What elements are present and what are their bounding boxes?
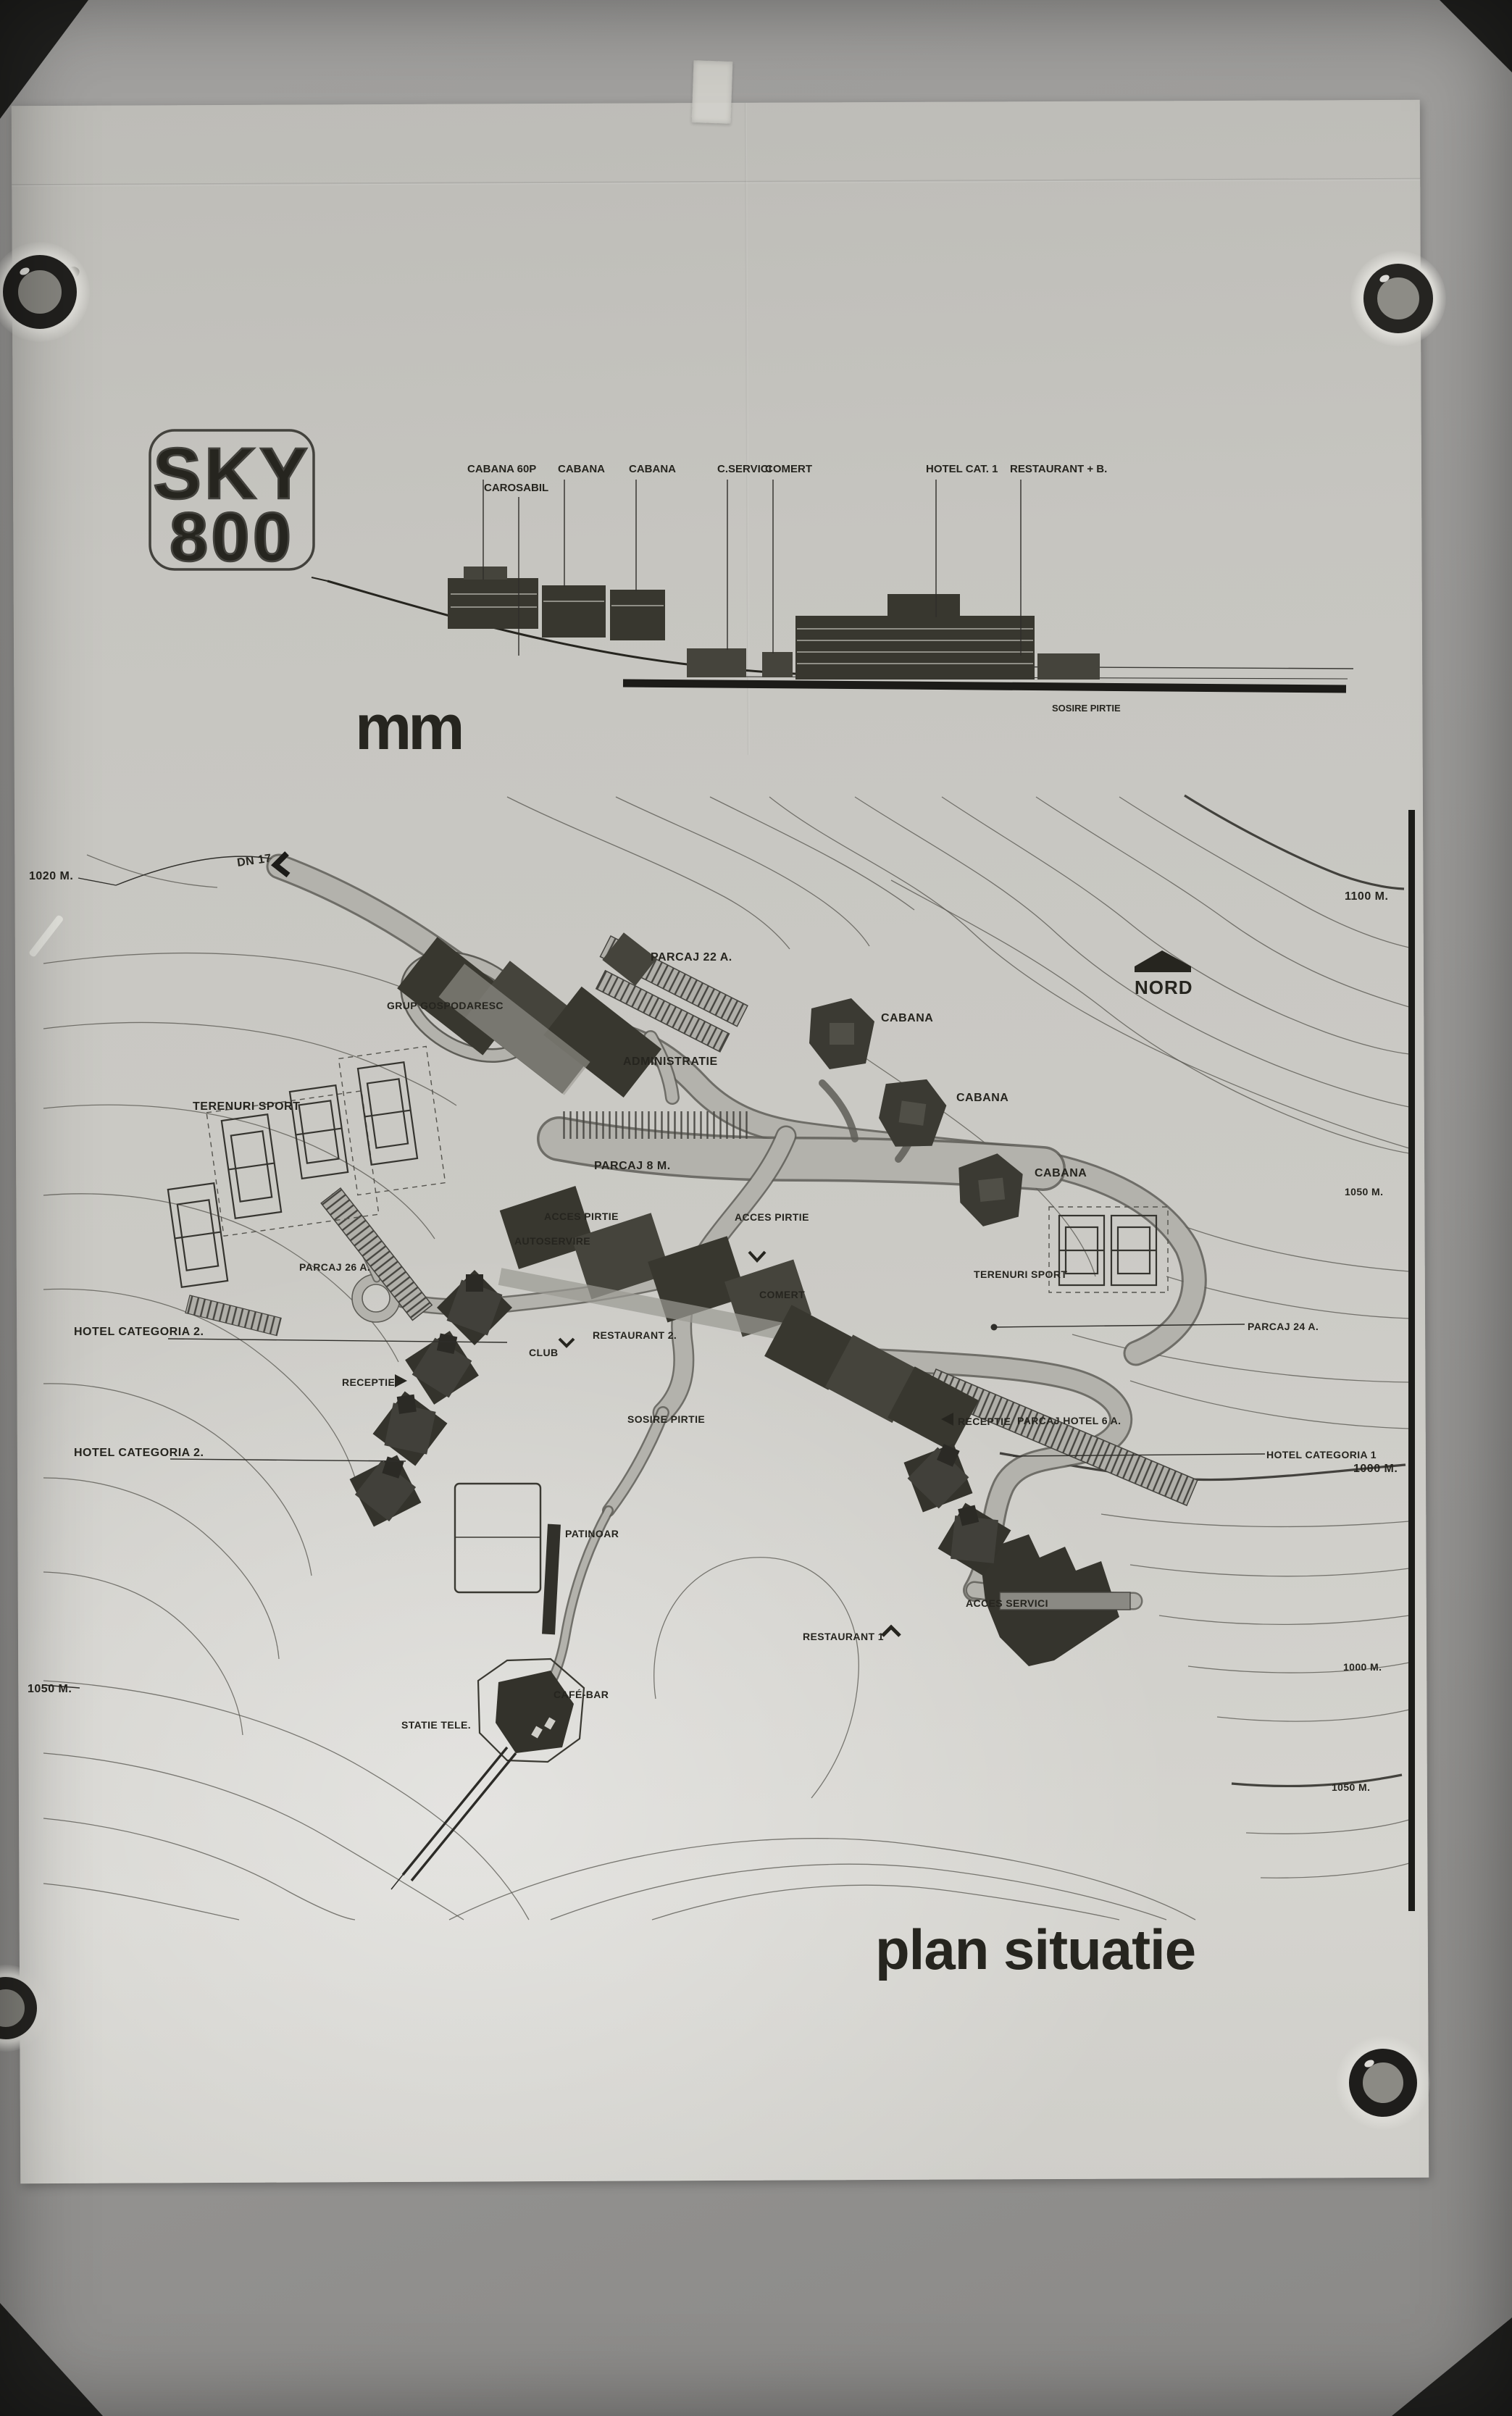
elev-label-restaurant-b: RESTAURANT + B. <box>1010 463 1107 475</box>
label-elev-1000-hotel: 1000 M. <box>1353 1463 1398 1475</box>
label-comert: COMERT <box>759 1289 805 1300</box>
tennis-courts-left <box>168 1046 446 1287</box>
label-cafe-bar: CAFÉ-BAR <box>554 1689 609 1700</box>
label-elev-1100: 1100 M. <box>1345 890 1388 903</box>
drawing-artwork: SKY 800 mm <box>0 0 1512 2416</box>
elev-label-cabana-b: CABANA <box>558 463 605 475</box>
sky-800-logo: SKY 800 <box>150 430 314 576</box>
label-receptie-right: RECEPTIE <box>958 1416 1011 1427</box>
label-hotel-categoria-2-upper: HOTEL CATEGORIA 2. <box>74 1326 204 1338</box>
label-elev-1050-left: 1050 M. <box>28 1683 72 1695</box>
administration-buildings <box>397 932 661 1098</box>
plan-title: plan situatie <box>875 1918 1195 1981</box>
label-administratie: ADMINISTRATIE <box>623 1056 718 1068</box>
elev-label-cabana-c: CABANA <box>629 463 676 475</box>
label-acces-pirtie-right: ACCES PIRTIE <box>735 1211 809 1223</box>
photograph-of-architectural-site-plan: SKY 800 mm <box>0 0 1512 2416</box>
label-restaurant-2: RESTAURANT 2. <box>593 1329 677 1341</box>
label-club: CLUB <box>529 1347 558 1358</box>
label-cabana-2: CABANA <box>956 1092 1008 1104</box>
label-elev-1050-right: 1050 M. <box>1345 1186 1383 1197</box>
contour-lines <box>43 795 1409 1920</box>
label-parcaj-22: PARCAJ 22 A. <box>651 951 732 964</box>
label-hotel-categoria-2-lower: HOTEL CATEGORIA 2. <box>74 1447 204 1459</box>
label-cabana-3: CABANA <box>1035 1167 1087 1179</box>
elevation-drawing: CABANA 60P CAROSABIL CABANA CABANA C.SER… <box>312 463 1353 714</box>
label-elev-1050-low: 1050 M. <box>1332 1781 1370 1793</box>
label-acces-servici: ACCES SERVICI <box>966 1597 1048 1609</box>
logo-line2: 800 <box>170 498 294 576</box>
adhesive-tape <box>692 60 733 124</box>
label-parcaj-hotel-6a: PARCAJ HOTEL 6 A. <box>1017 1415 1121 1426</box>
elev-label-cabana60p: CABANA 60P <box>467 463 536 475</box>
label-hotel-categoria-1: HOTEL CATEGORIA 1 <box>1266 1449 1377 1460</box>
pin-bottom-right <box>1336 2036 1430 2130</box>
elev-label-hotel-cat1: HOTEL CAT. 1 <box>926 463 998 475</box>
label-terenuri-sport-left: TERENURI SPORT <box>193 1100 300 1113</box>
label-receptie-left: RECEPTIE <box>342 1376 395 1388</box>
label-sosire-pirtie: SOSIRE PIRTIE <box>627 1413 705 1425</box>
mm-stamp: mm <box>355 691 461 763</box>
north-label: NORD <box>1135 977 1193 998</box>
elev-label-cservici: C.SERVICI <box>717 463 772 475</box>
label-cabana-1: CABANA <box>881 1012 933 1024</box>
label-statie-tele: STATIE TELE. <box>401 1719 471 1731</box>
label-elev-1000-low: 1000 M. <box>1343 1661 1382 1673</box>
drawing-border-line <box>1408 810 1415 1911</box>
label-parcaj-8m: PARCAJ 8 M. <box>594 1160 671 1172</box>
elev-label-carosabil: CAROSABIL <box>484 482 548 494</box>
label-patinoar: PATINOAR <box>565 1528 619 1539</box>
elev-sublabel-sosire: SOSIRE PIRTIE <box>1052 703 1121 714</box>
label-terenuri-sport-right: TERENURI SPORT <box>974 1268 1067 1280</box>
label-restaurant-1: RESTAURANT 1 <box>803 1631 884 1642</box>
pin-top-right <box>1350 251 1446 346</box>
site-plan: NORD DN 17 1020 M. 1100 M. PARCAJ 22 A. … <box>0 0 1415 1920</box>
label-autoservire: AUTOSERVIRE <box>514 1235 590 1247</box>
elev-label-comert: COMERT <box>765 463 812 475</box>
label-parcaj-24: PARCAJ 24 A. <box>1248 1321 1319 1332</box>
north-indicator: NORD <box>1135 950 1193 998</box>
label-elev-1020: 1020 M. <box>29 870 73 882</box>
label-acces-pirtie-left: ACCES PIRTIE <box>544 1211 619 1222</box>
label-parcaj-26: PARCAJ 26 A. <box>299 1261 370 1273</box>
label-grup-gospodaresc: GRUP GOSPODARESC <box>387 1000 504 1011</box>
patinoar-rink <box>455 1484 561 1634</box>
